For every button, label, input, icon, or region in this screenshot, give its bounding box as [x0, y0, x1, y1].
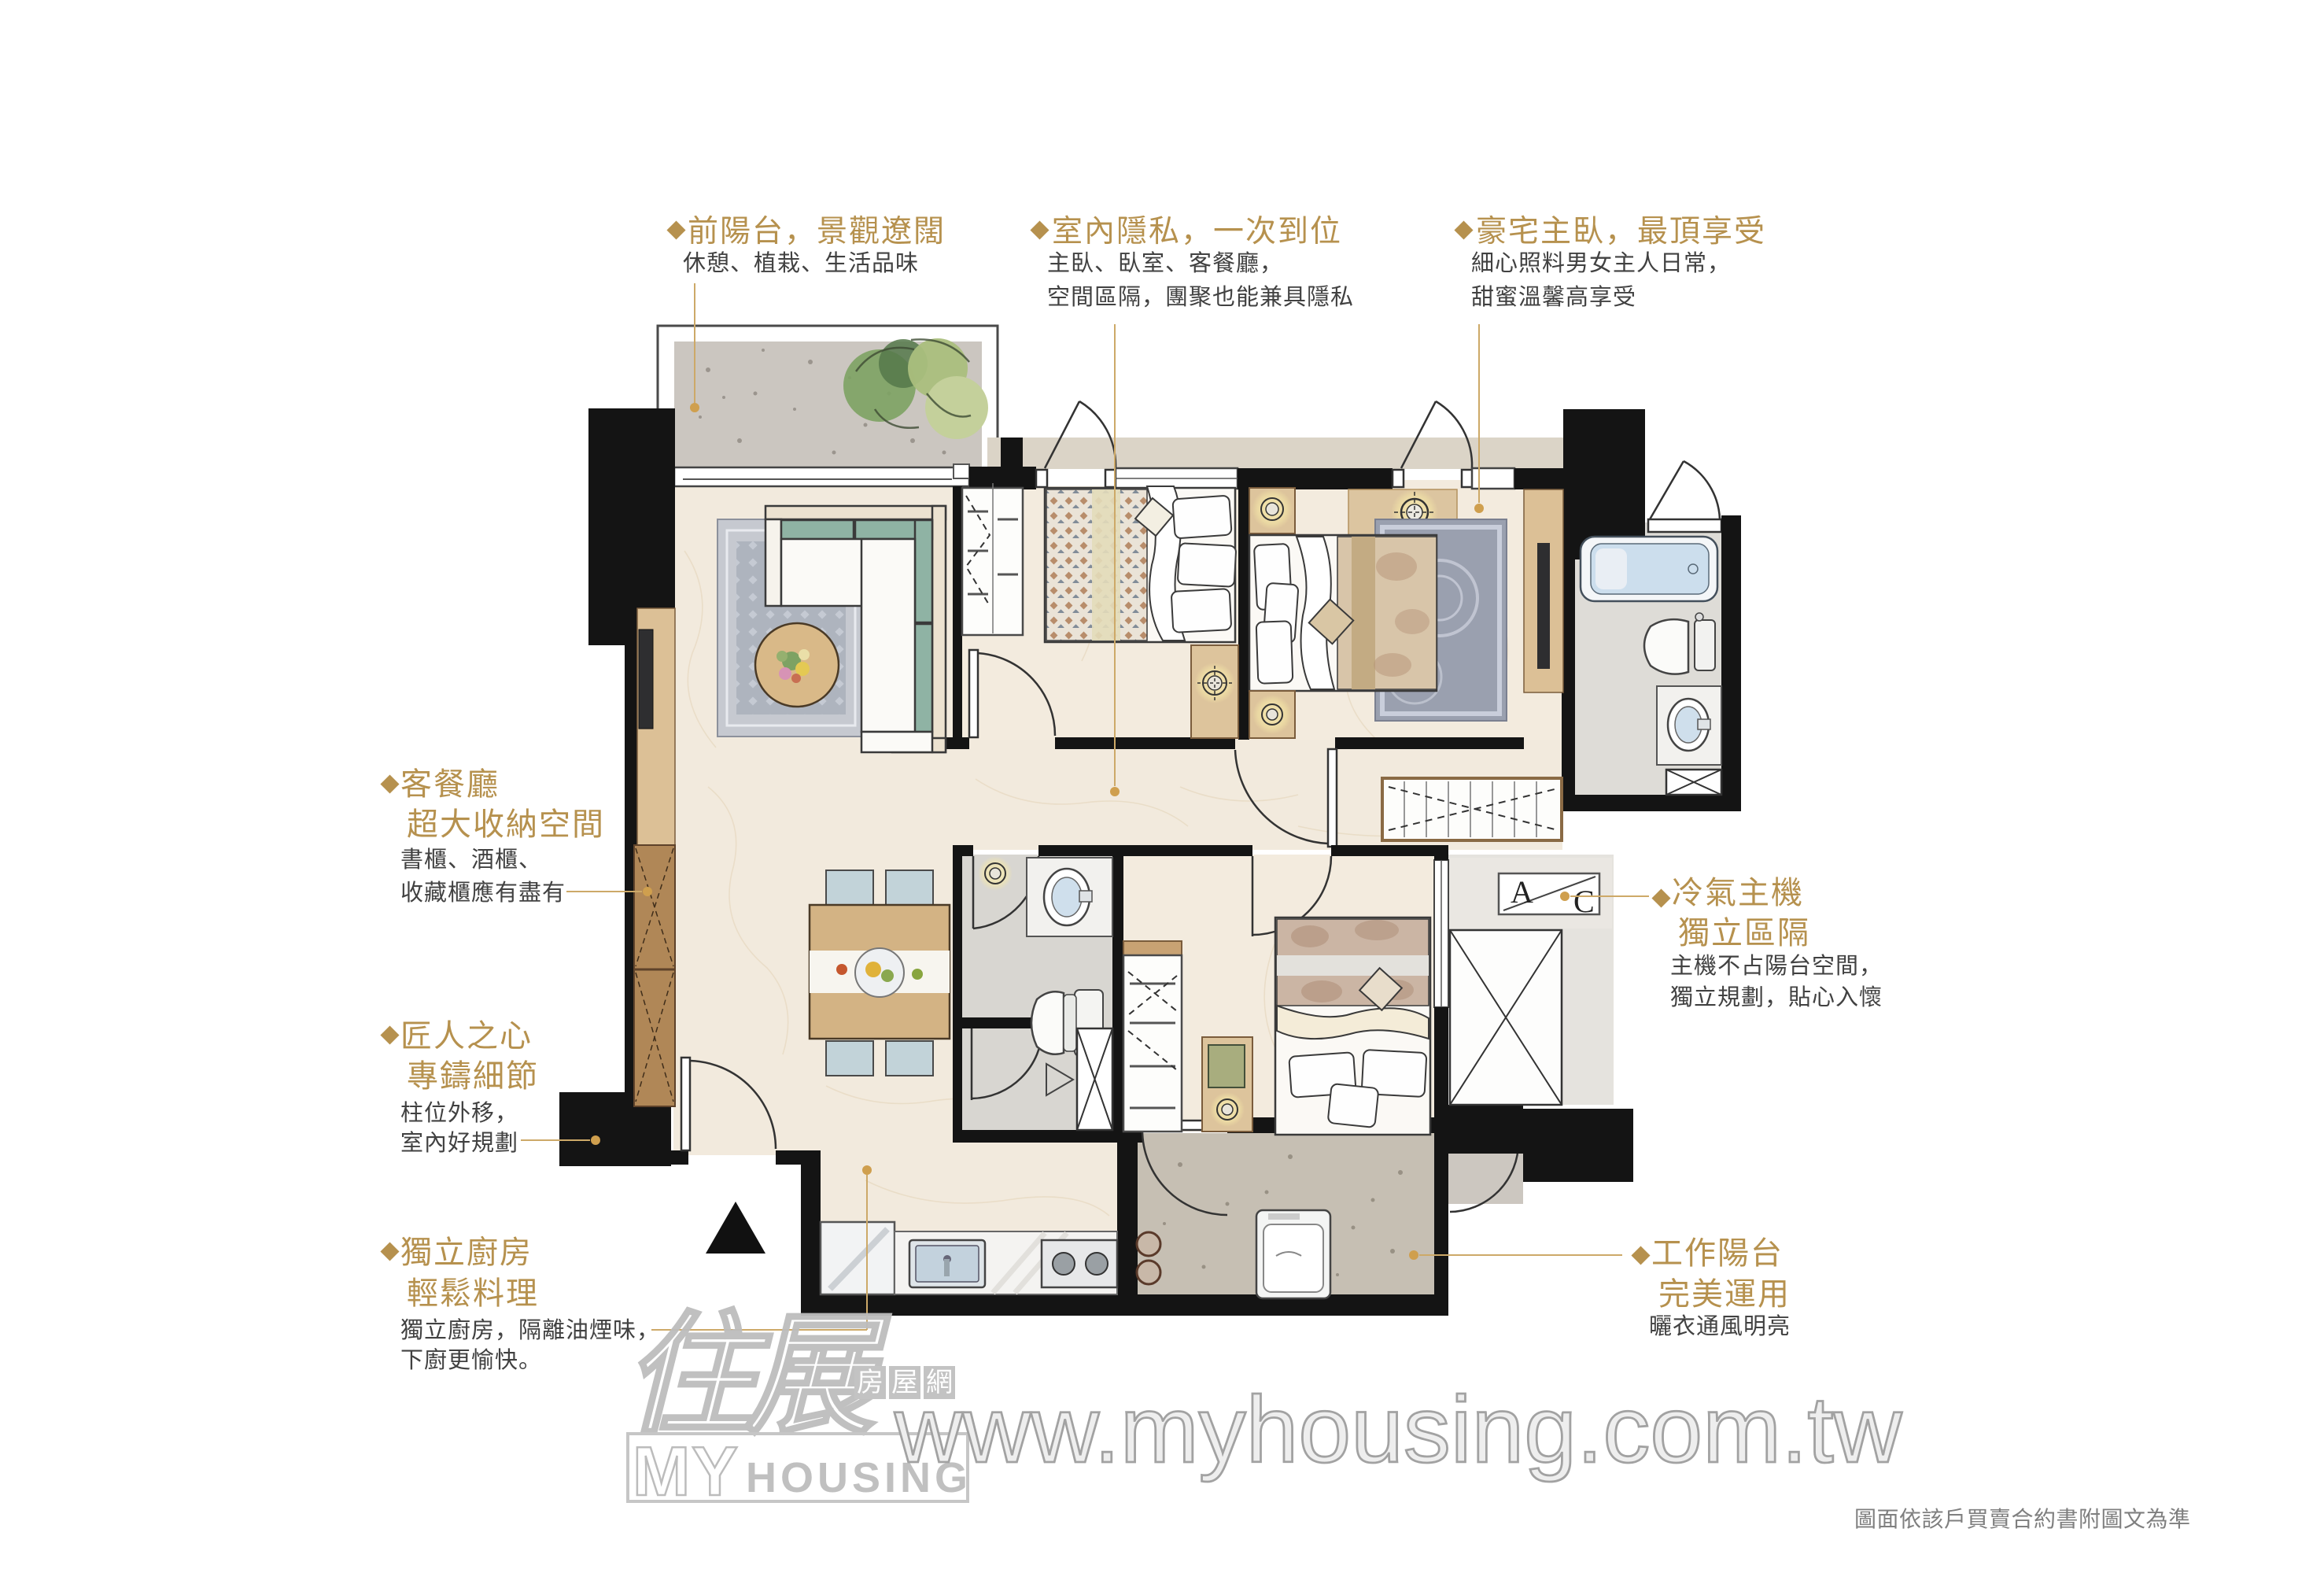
- svg-text:獨立廚房: 獨立廚房: [400, 1235, 533, 1270]
- svg-text:主臥、臥室、客餐廳，: 主臥、臥室、客餐廳，: [1047, 250, 1283, 276]
- svg-text:休憩、植栽、生活品味: 休憩、植栽、生活品味: [683, 250, 919, 276]
- svg-text:完美運用: 完美運用: [1658, 1276, 1791, 1312]
- svg-text:獨立廚房，隔離油煙味，: 獨立廚房，隔離油煙味，: [400, 1317, 660, 1343]
- svg-text:匠人之心: 匠人之心: [400, 1018, 533, 1054]
- svg-text:專鑄細節: 專鑄細節: [407, 1058, 539, 1094]
- svg-text:下廚更愉快。: 下廚更愉快。: [400, 1347, 542, 1373]
- svg-text:甜蜜溫馨高享受: 甜蜜溫馨高享受: [1471, 284, 1636, 310]
- svg-text:柱位外移，: 柱位外移，: [400, 1100, 518, 1126]
- svg-text:前陽台，景觀遼闊: 前陽台，景觀遼闊: [688, 215, 946, 249]
- svg-text:MY: MY: [633, 1432, 740, 1510]
- svg-text:圖面依該戶買賣合約書附圖文為準: 圖面依該戶買賣合約書附圖文為準: [1854, 1507, 2191, 1531]
- svg-text:工作陽台: 工作陽台: [1651, 1235, 1784, 1271]
- svg-text:收藏櫃應有盡有: 收藏櫃應有盡有: [400, 880, 566, 906]
- svg-text:C: C: [1573, 884, 1595, 919]
- svg-text:住展: 住展: [623, 1304, 891, 1450]
- svg-text:書櫃、酒櫃、: 書櫃、酒櫃、: [400, 847, 542, 873]
- svg-text:輕鬆料理: 輕鬆料理: [407, 1276, 539, 1311]
- svg-text:A: A: [1511, 874, 1533, 910]
- svg-text:房: 房: [857, 1368, 883, 1398]
- svg-text:曬衣通風明亮: 曬衣通風明亮: [1649, 1313, 1791, 1339]
- svg-text:客餐廳: 客餐廳: [400, 766, 500, 802]
- svg-text:冷氣主機: 冷氣主機: [1672, 875, 1804, 910]
- svg-text:www.myhousing.com.tw: www.myhousing.com.tw: [894, 1377, 1902, 1482]
- svg-text:室內好規劃: 室內好規劃: [400, 1130, 518, 1156]
- svg-text:空間區隔，團聚也能兼具隱私: 空間區隔，團聚也能兼具隱私: [1047, 284, 1354, 310]
- svg-text:超大收納空間: 超大收納空間: [407, 807, 605, 842]
- svg-text:細心照料男女主人日常，: 細心照料男女主人日常，: [1471, 250, 1731, 276]
- svg-text:豪宅主臥，最頂享受: 豪宅主臥，最頂享受: [1476, 215, 1766, 249]
- svg-text:獨立規劃，貼心入懷: 獨立規劃，貼心入懷: [1670, 984, 1883, 1010]
- svg-text:主機不占陽台空間，: 主機不占陽台空間，: [1670, 953, 1883, 979]
- svg-text:室內隱私，一次到位: 室內隱私，一次到位: [1052, 215, 1342, 249]
- svg-text:獨立區隔: 獨立區隔: [1678, 915, 1810, 951]
